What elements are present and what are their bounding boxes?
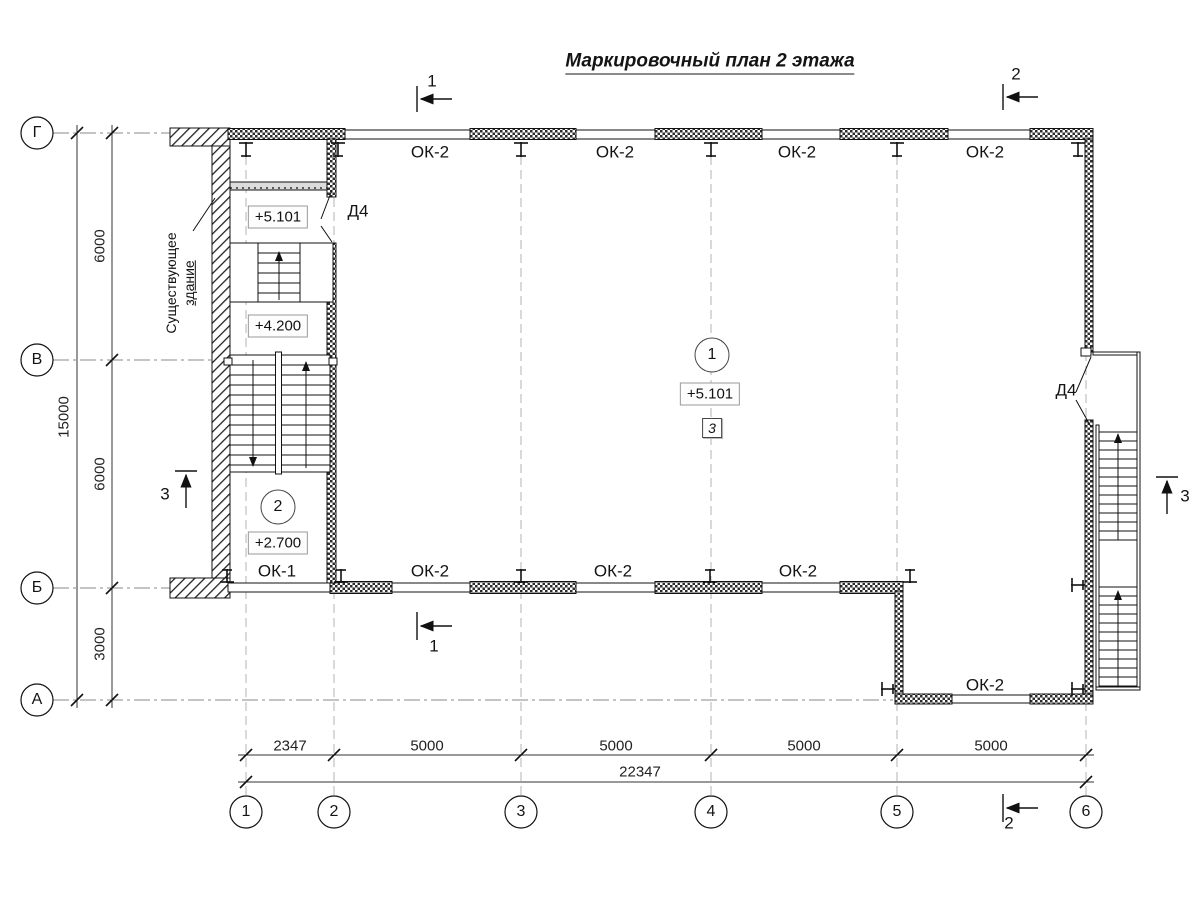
wall-right: [1085, 139, 1093, 703]
dim-5-6: 5000: [974, 739, 1007, 754]
floor-plan-sheet: Маркировочный план 2 этажа ОК-2 ОК-2 ОК-…: [0, 0, 1200, 900]
window-mark-ok2: ОК-2: [966, 144, 1004, 161]
dim-4-5: 5000: [787, 739, 820, 754]
room-number-hall: 1: [708, 347, 717, 363]
door-d4-exterior: [1076, 348, 1091, 427]
axis-col-6: 6: [1082, 804, 1091, 820]
stair-exterior: [1093, 352, 1140, 690]
dim-b-a: 3000: [93, 627, 108, 660]
elevation-mid-landing: +4.200: [248, 315, 308, 338]
door-mark-d4: Д4: [1056, 382, 1077, 399]
columns: [220, 142, 1085, 696]
node-ref-box: 3: [702, 418, 722, 438]
elevation-upper-landing: +5.101: [248, 206, 308, 229]
door-mark-d4: Д4: [348, 203, 369, 220]
stair-main: [224, 352, 337, 474]
section-mark-2: 2: [1011, 66, 1020, 83]
dim-3-4: 5000: [599, 739, 632, 754]
axis-col-5: 5: [893, 804, 902, 820]
floor-plan-drawing: [0, 0, 1200, 900]
existing-building-walls: [170, 128, 230, 598]
axis-col-3: 3: [517, 804, 526, 820]
window-mark-ok1: ОК-1: [258, 563, 296, 580]
window-mark-ok2: ОК-2: [778, 144, 816, 161]
window-mark-ok2: ОК-2: [411, 144, 449, 161]
section-mark-1: 1: [427, 73, 436, 90]
section-mark-1: 1: [429, 638, 438, 655]
elevation-lower-landing: +2.700: [248, 532, 308, 555]
room-number-stairwell: 2: [274, 499, 283, 515]
axis-col-1: 1: [242, 804, 251, 820]
dim-2-3: 5000: [410, 739, 443, 754]
grid-lines-horizontal: [53, 133, 893, 700]
axis-row-a: А: [32, 692, 43, 708]
section-mark-2: 2: [1004, 815, 1013, 832]
axis-row-b: Б: [32, 580, 43, 596]
existing-building-note: Существующее здание: [162, 232, 198, 333]
dim-g-v: 6000: [93, 229, 108, 262]
axis-row-g: Г: [33, 125, 42, 141]
axis-col-2: 2: [330, 804, 339, 820]
section-mark-3: 3: [160, 486, 169, 503]
axis-row-v: В: [32, 352, 43, 368]
window-mark-ok2: ОК-2: [966, 677, 1004, 694]
section-mark-3: 3: [1180, 488, 1189, 505]
dim-horizontal-total: 22347: [619, 765, 661, 780]
dim-1-2: 2347: [273, 739, 306, 754]
axis-circles: [21, 117, 1102, 828]
wall-top: [228, 129, 1093, 140]
window-mark-ok2: ОК-2: [594, 563, 632, 580]
elevation-hall: +5.101: [680, 383, 740, 406]
dim-v-b: 6000: [93, 457, 108, 490]
door-d4-stairwell: [321, 190, 332, 242]
window-mark-ok2: ОК-2: [411, 563, 449, 580]
stair-upper-flight: [230, 243, 333, 302]
axis-col-4: 4: [707, 804, 716, 820]
window-mark-ok2: ОК-2: [779, 563, 817, 580]
drawing-title: Маркировочный план 2 этажа: [565, 52, 854, 75]
window-mark-ok2: ОК-2: [596, 144, 634, 161]
dim-vertical-total: 15000: [57, 396, 72, 438]
